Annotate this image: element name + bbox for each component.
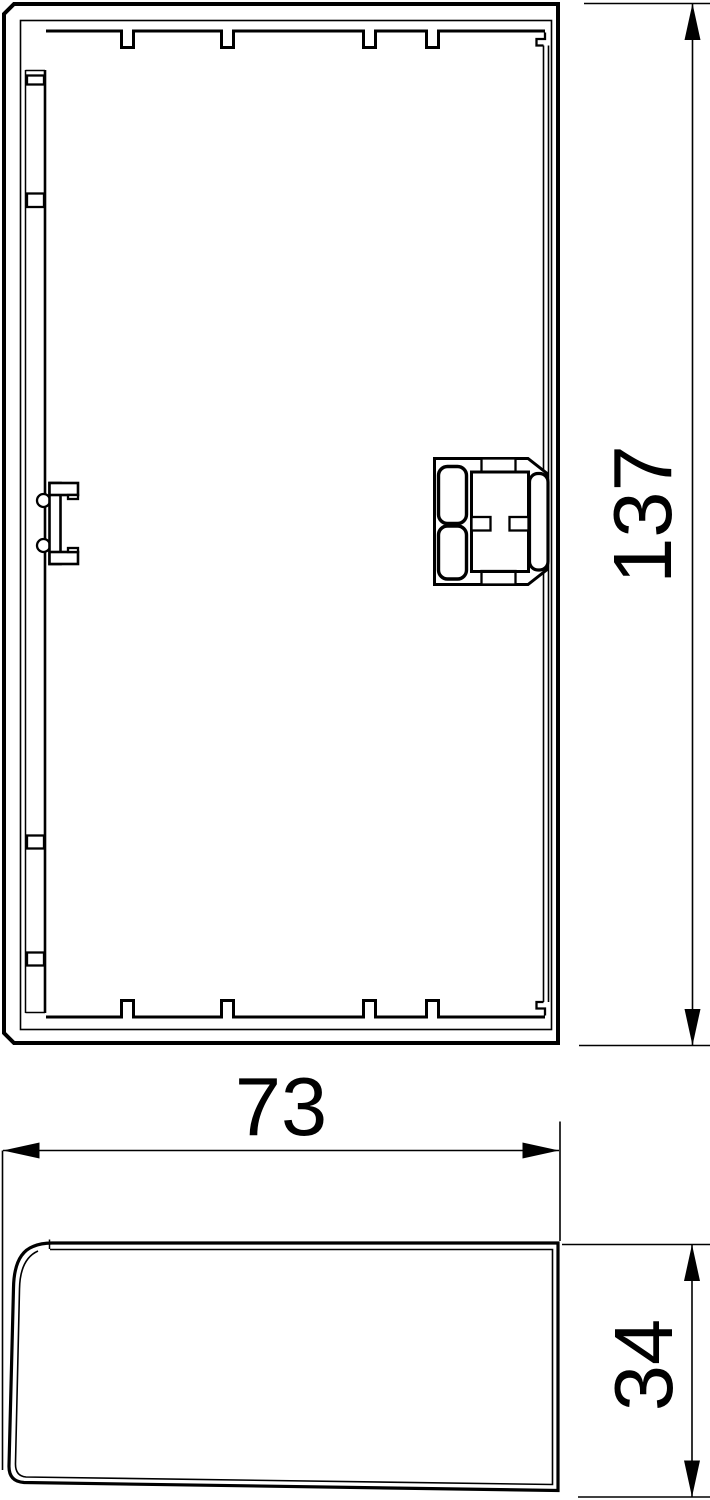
dimension-height: 137 — [579, 4, 710, 1046]
left-rail-slot — [27, 953, 44, 966]
front-bottom-right-step — [537, 1002, 546, 1016]
side-view — [9, 1240, 558, 1491]
latch-left-nub — [472, 517, 491, 531]
left-rail-slot — [27, 76, 44, 85]
latch-slot — [439, 467, 467, 524]
left-rail-slot — [27, 194, 44, 208]
arrowhead-down-icon — [685, 1009, 701, 1046]
arrowhead-up-icon — [685, 4, 701, 41]
clip-pin — [37, 494, 50, 507]
front-view — [4, 4, 558, 1043]
clip-bottom-lip — [68, 548, 78, 552]
clip-top-lip — [68, 495, 78, 499]
side-outline — [9, 1243, 558, 1491]
arrowhead-right-icon — [523, 1143, 560, 1159]
clip-pin — [37, 539, 50, 552]
arrowhead-up-icon — [684, 1245, 700, 1282]
latch-right-nub — [510, 517, 529, 531]
arrowhead-left-icon — [3, 1143, 40, 1159]
left-clip — [37, 483, 78, 564]
front-top-edge-notched — [46, 31, 545, 48]
latch-bottom-tab — [482, 571, 516, 585]
dimension-label-width: 73 — [235, 1060, 327, 1153]
dimension-depth: 34 — [562, 1245, 710, 1498]
dimension-label-depth: 34 — [597, 1319, 690, 1411]
latch-spring-slot — [530, 474, 549, 571]
clip-top-arm — [50, 483, 79, 495]
front-top-right-step — [537, 33, 546, 46]
latch-slot — [439, 526, 467, 579]
arrowhead-down-icon — [684, 1461, 700, 1498]
left-rail-slot — [27, 836, 44, 849]
clip-bottom-arm — [50, 552, 79, 564]
technical-drawing-canvas: 137 73 34 — [0, 0, 710, 1500]
front-bottom-edge-notched — [46, 1001, 545, 1018]
technical-drawing-page: 137 73 34 — [0, 0, 710, 1500]
right-latch — [435, 459, 549, 585]
latch-top-tab — [482, 459, 516, 473]
dimension-label-height: 137 — [596, 445, 689, 583]
